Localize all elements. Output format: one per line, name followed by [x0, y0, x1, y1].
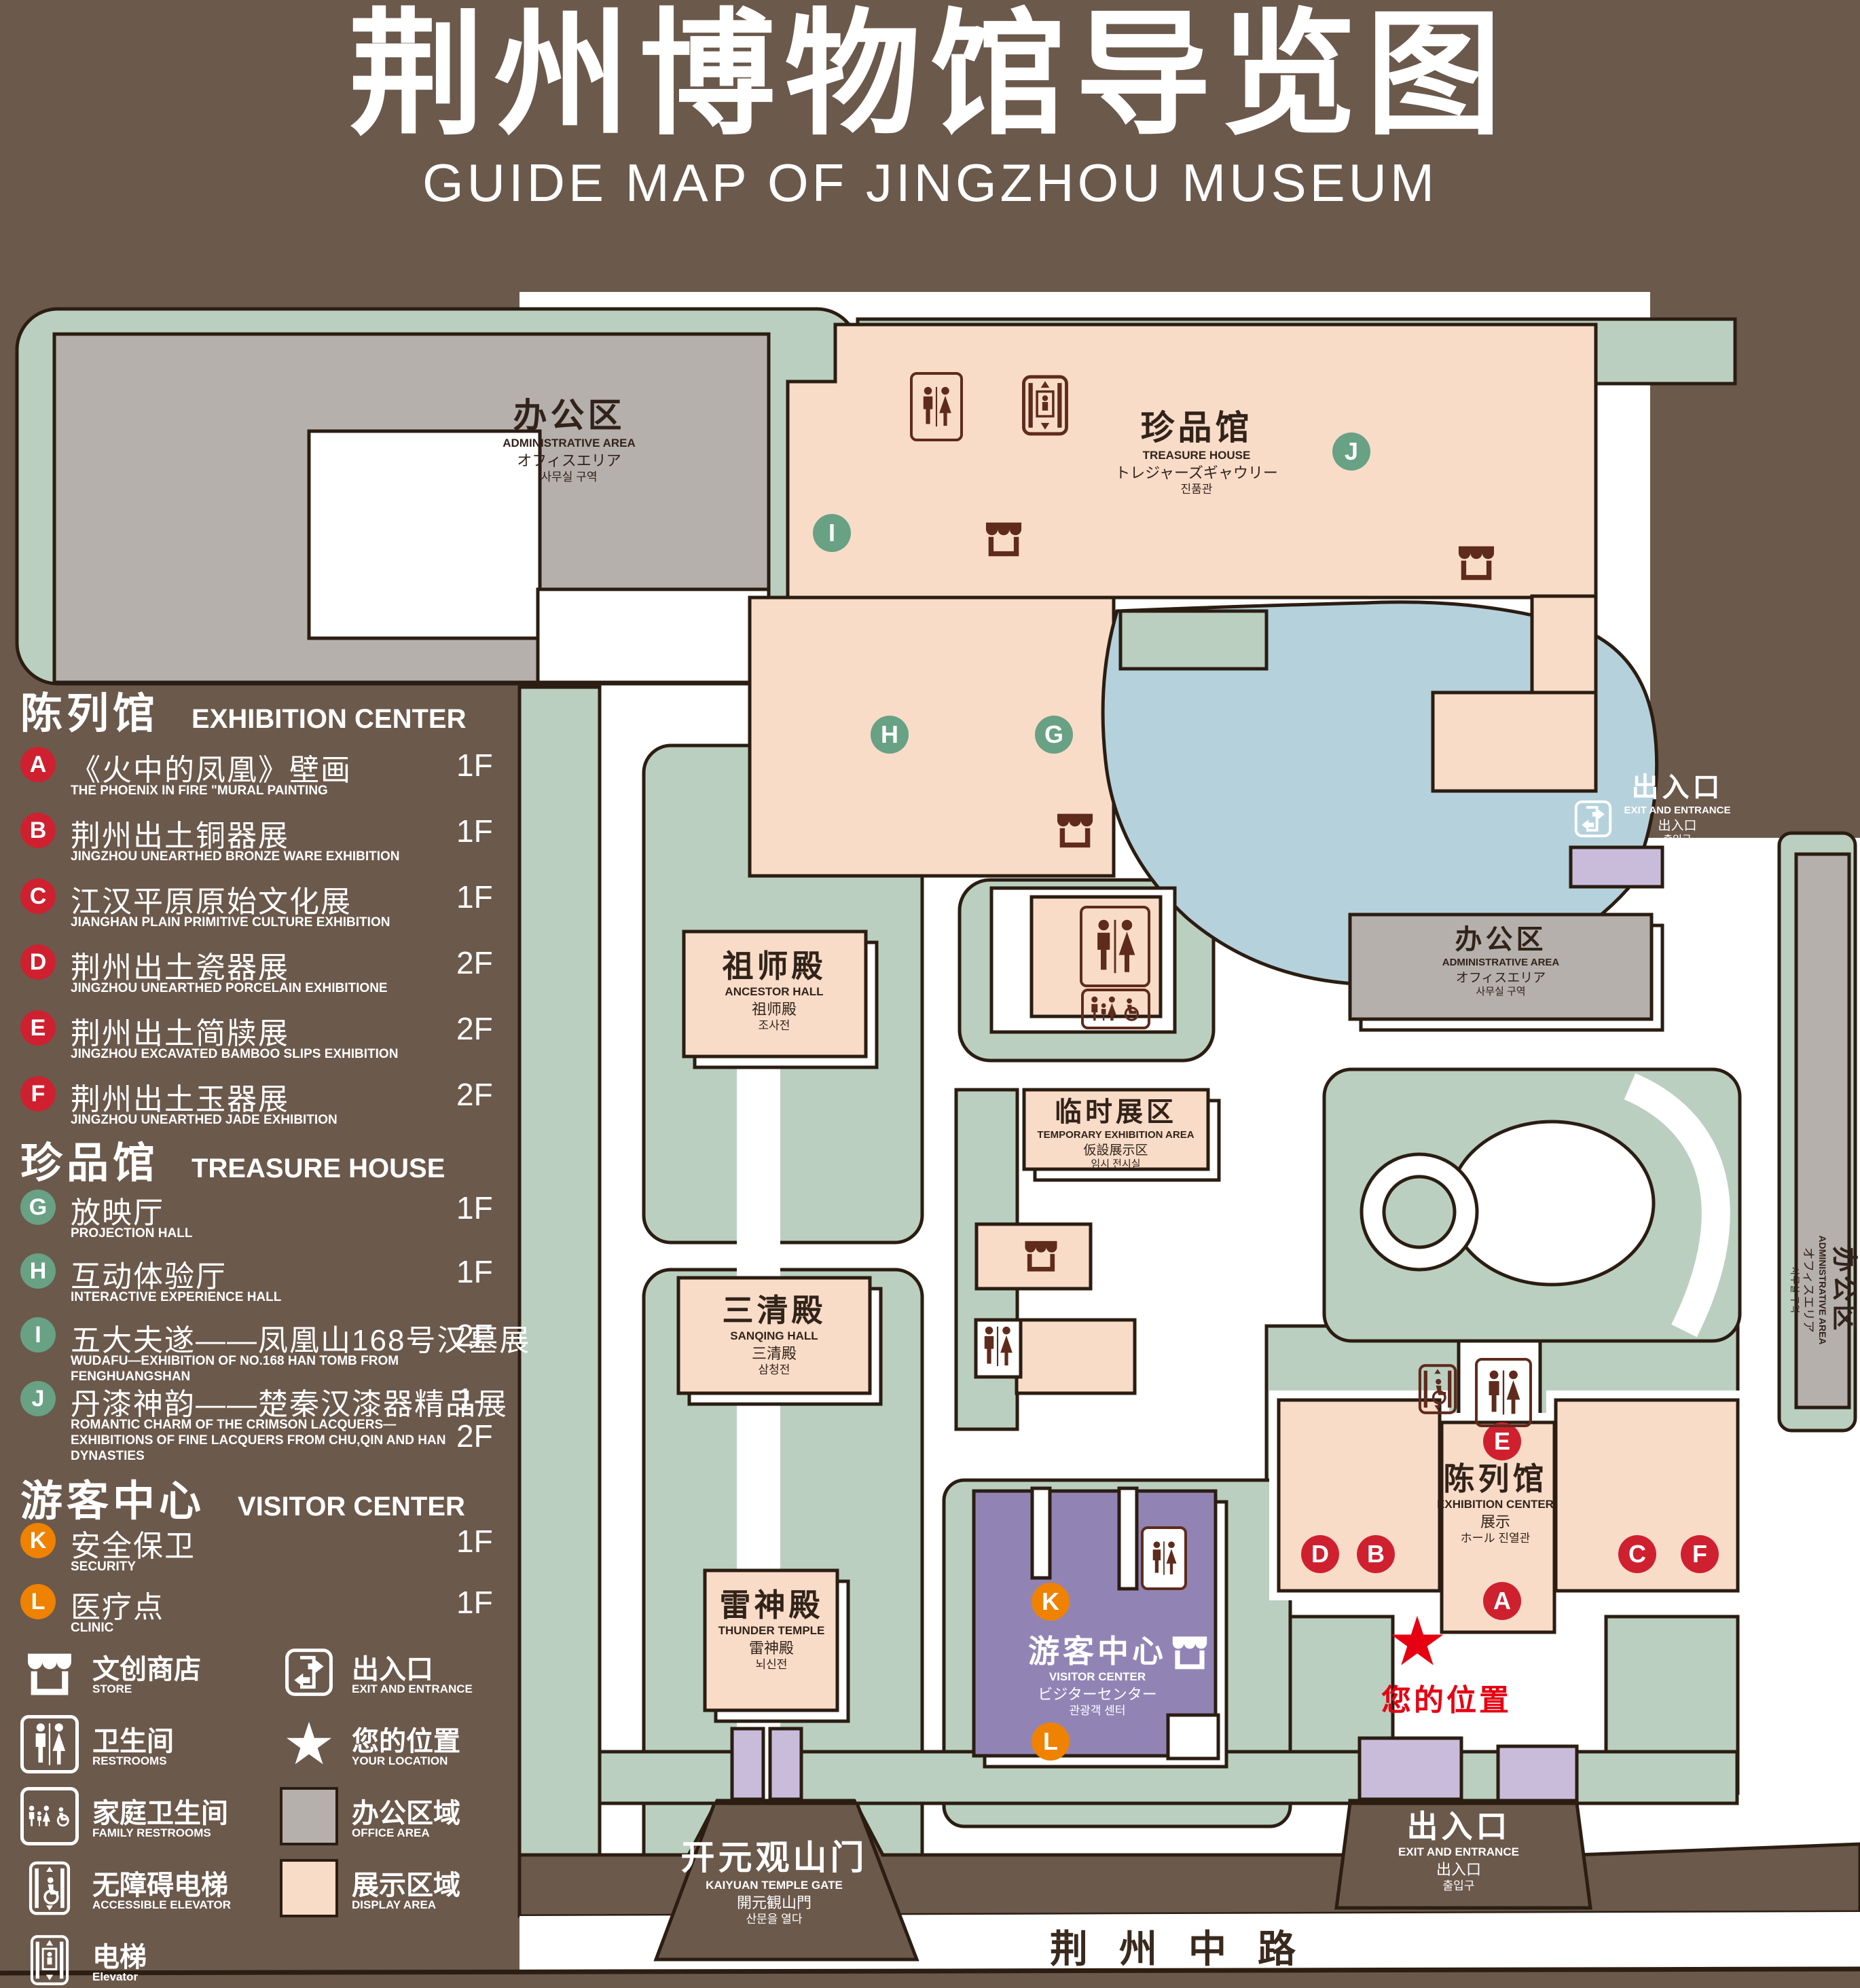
item-subtitle: PROJECTION HALL	[71, 1226, 192, 1242]
item-floor: 1F	[456, 813, 493, 849]
symbol-label-zh: 展示区域	[352, 1863, 460, 1902]
section-title-en: EXHIBITION CENTER	[192, 704, 466, 735]
item-title: 安全保卫	[71, 1522, 196, 1565]
display-area-swatch	[280, 1859, 338, 1917]
badge-e: E	[20, 1010, 56, 1046]
legend-symbol-office-area: 办公区域 OFFICE AREA	[280, 1787, 524, 1852]
badge-h: H	[20, 1253, 56, 1289]
badge-k: K	[20, 1523, 56, 1558]
label-treasure-house: 珍品馆TREASURE HOUSE トレジャーズギャウリー진품관	[1115, 407, 1278, 496]
map-badge-g: G	[1035, 716, 1073, 754]
item-subtitle: JINGZHOU UNEARTHED JADE EXHIBITION	[71, 1113, 338, 1128]
legend-item-l: L 医疗点 CLINIC 1F	[20, 1584, 509, 1649]
exit-south-platform-2	[1498, 1746, 1577, 1801]
label-thunder-temple: 雷神殿THUNDER TEMPLE 雷神殿뇌신전	[718, 1586, 825, 1672]
exit-ne-door-icon	[1574, 800, 1612, 841]
item-subtitle: INTERACTIVE EXPERIENCE HALL	[71, 1290, 281, 1306]
section-title-zh: 珍品馆	[20, 1128, 159, 1190]
gate-pillar-west	[732, 1729, 763, 1799]
map-badge-e: E	[1483, 1422, 1521, 1460]
badge-j: J	[20, 1381, 56, 1416]
symbol-label-en: OFFICE AREA	[352, 1826, 430, 1840]
section-title-zh: 陈列馆	[20, 679, 159, 740]
item-floor: 1F	[456, 1253, 493, 1290]
item-title: 医疗点	[71, 1583, 164, 1626]
legend-item-h: H 互动体验厅 INTERACTIVE EXPERIENCE HALL 1F	[20, 1253, 509, 1319]
path-axis-1	[737, 1056, 780, 1278]
road-name: 荆州中路	[1050, 1919, 1327, 1974]
store-icon	[20, 1643, 79, 1701]
badge-g: G	[20, 1190, 56, 1225]
label-ancestor-hall: 祖师殿ANCESTOR HALL 祖师殿조사전	[723, 947, 826, 1033]
admin-nw-notch	[538, 589, 769, 682]
badge-a: A	[20, 747, 56, 782]
symbol-label-zh: 家庭卫生间	[92, 1791, 228, 1830]
item-floor: 1F	[456, 747, 493, 784]
item-title: 丹漆神韵——楚秦汉漆器精品展	[71, 1380, 508, 1423]
badge-b: B	[20, 813, 56, 848]
mid-store-icon	[1022, 1230, 1060, 1283]
item-subtitle: SECURITY	[71, 1560, 136, 1575]
section-title-en: VISITOR CENTER	[238, 1492, 465, 1522]
treasure-restroom-icon	[910, 372, 963, 441]
label-admin-central: 办公区ADMINISTRATIVE AREA オフィスエリア사무실 구역	[1442, 923, 1560, 999]
legend-item-g: G 放映厅 PROJECTION HALL 1F	[20, 1190, 509, 1255]
legend-item-b: B 荆州出土铜器展 JINGZHOU UNEARTHED BRONZE WARE…	[20, 813, 509, 878]
badge-l: L	[20, 1584, 56, 1619]
item-subtitle: JINGZHOU UNEARTHED PORCELAIN EXHIBITIONE	[71, 981, 388, 997]
legend-symbol-location: ★ 您的位置 YOUR LOCATION	[280, 1715, 524, 1780]
symbol-label-en: Elevator	[92, 1970, 138, 1984]
item-floor: 1F	[456, 1523, 493, 1560]
court-restroom-icon	[1080, 906, 1150, 987]
family-restroom-icon	[20, 1787, 79, 1845]
legend-symbol-elevator: 电梯 Elevator	[20, 1931, 265, 1988]
legend-symbol-display-area: 展示区域 DISPLAY AREA	[280, 1859, 524, 1924]
item-floor: 1-2F	[456, 1381, 509, 1454]
item-subtitle: JIANGHAN PLAIN PRIMITIVE CULTURE EXHIBIT…	[71, 915, 390, 931]
elevator-icon	[20, 1931, 79, 1988]
symbol-label-en: YOUR LOCATION	[352, 1754, 448, 1768]
legend-symbol-restroom: 卫生间 RESTROOMS	[20, 1715, 265, 1780]
treasure-house-east-link	[1532, 596, 1596, 695]
legend-symbol-store: 文创商店 STORE	[20, 1643, 265, 1708]
legend-item-d: D 荆州出土瓷器展 JINGZHOU UNEARTHED PORCELAIN E…	[20, 944, 509, 1010]
treasure-store-icon-3	[1054, 803, 1096, 859]
symbol-label-en: FAMILY RESTROOMS	[92, 1826, 211, 1840]
mid-restroom-icon	[980, 1324, 1015, 1372]
label-exit-south: 出入口EXIT AND ENTRANCE 出入口출입구	[1398, 1807, 1519, 1893]
path-axis-2	[737, 1393, 780, 1570]
legend-item-e: E 荆州出土简牍展 JINGZHOU EXCAVATED BAMBOO SLIP…	[20, 1010, 509, 1075]
badge-f: F	[20, 1076, 56, 1111]
label-exit-northeast: 出入口EXIT AND ENTRANCE 出入口출입구	[1624, 771, 1731, 847]
accessible-elevator-icon	[20, 1859, 79, 1917]
visitor-restroom-icon	[1141, 1526, 1187, 1590]
legend-section-exhibition-center: 陈列馆 EXHIBITION CENTER	[20, 679, 467, 740]
legend-symbol-family-restroom: 家庭卫生间 FAMILY RESTROOMS	[20, 1787, 265, 1852]
label-sanqing-hall: 三清殿SANQING HALL 三清殿삼청전	[723, 1291, 826, 1377]
map-badge-l: L	[1032, 1723, 1070, 1761]
legend-section-treasure-house: 珍品馆 TREASURE HOUSE	[20, 1128, 445, 1190]
badge-i: I	[20, 1317, 56, 1352]
treasure-house-east-wing	[1433, 693, 1596, 791]
map-badge-h: H	[871, 716, 909, 754]
map-badge-d: D	[1301, 1535, 1339, 1573]
item-title: 互动体验厅	[71, 1252, 227, 1295]
symbol-label-zh: 出入口	[352, 1647, 433, 1687]
label-admin-northwest: 办公区ADMINISTRATIVE AREA オフィスエリア사무실 구역	[503, 395, 636, 484]
item-title: 江汉平原原始文化展	[71, 877, 352, 921]
symbol-label-zh: 卫生间	[92, 1719, 174, 1759]
item-title: 《火中的凤凰》壁画	[71, 745, 352, 789]
court-family-restroom-icon	[1081, 989, 1150, 1029]
item-subtitle: ROMANTIC CHARM OF THE CRIMSON LACQUERS—E…	[71, 1418, 448, 1464]
symbol-label-zh: 您的位置	[352, 1719, 460, 1759]
treasure-elevator-icon	[1021, 373, 1069, 441]
section-title-en: TREASURE HOUSE	[192, 1154, 445, 1184]
visitor-store-icon	[1169, 1625, 1210, 1680]
label-exhibition-center: 陈列馆EXHIBITION CENTER 展示ホール 진열관	[1437, 1460, 1554, 1545]
map-badge-j: J	[1332, 432, 1370, 471]
legend-symbol-exit: 出入口 EXIT AND ENTRANCE	[280, 1643, 524, 1708]
item-floor: 2F	[456, 1317, 493, 1354]
your-location-label: 您的位置	[1381, 1676, 1512, 1719]
label-kaiyuan-gate: 开元观山门KAIYUAN TEMPLE GATE 開元観山門산문을 열다	[681, 1837, 868, 1926]
restroom-icon	[20, 1715, 79, 1773]
label-visitor-center: 游客中心VISITOR CENTER ビジターセンター관광객 센터	[1028, 1632, 1167, 1718]
map-badge-a: A	[1483, 1582, 1521, 1620]
your-location-star-icon: ★	[1387, 1608, 1448, 1676]
legend-item-i: I 五大夫遂——凤凰山168号汉墓展 WUDAFU—EXHIBITION OF …	[20, 1317, 509, 1382]
symbol-label-en: ACCESSIBLE ELEVATOR	[92, 1898, 231, 1912]
badge-c: C	[20, 879, 56, 914]
exit-south-platform-1	[1360, 1738, 1461, 1799]
label-admin-east: 办公区ADMINISTRATIVE AREA オフィスエリア사무실 구역	[1789, 1236, 1859, 1345]
legend-symbol-accessible-elevator: 无障碍电梯 ACCESSIBLE ELEVATOR	[20, 1859, 265, 1924]
map-badge-k: K	[1032, 1583, 1070, 1621]
exhibition-restroom-icon	[1475, 1358, 1532, 1427]
symbol-label-zh: 无障碍电梯	[92, 1863, 228, 1902]
legend-item-a: A 《火中的凤凰》壁画 THE PHOENIX IN FIRE "MURAL P…	[20, 747, 509, 812]
item-subtitle: JINGZHOU UNEARTHED BRONZE WARE EXHIBITIO…	[71, 849, 400, 865]
treasure-store-icon-1	[983, 511, 1025, 568]
map-badge-i: I	[813, 514, 851, 552]
badge-d: D	[20, 944, 56, 980]
item-floor: 2F	[456, 1076, 493, 1113]
symbol-label-en: EXIT AND ENTRANCE	[352, 1682, 473, 1696]
legend-section-visitor-center: 游客中心 VISITOR CENTER	[20, 1467, 465, 1528]
item-title: 荆州出土铜器展	[71, 811, 289, 855]
symbol-label-en: STORE	[92, 1682, 132, 1696]
garden-west-strip	[519, 687, 600, 1893]
map-badge-f: F	[1681, 1535, 1719, 1573]
park-island	[1384, 1177, 1455, 1247]
item-floor: 2F	[456, 1010, 493, 1047]
map-badge-b: B	[1357, 1535, 1395, 1573]
exit-entrance-icon	[280, 1643, 338, 1701]
symbol-label-zh: 文创商店	[92, 1647, 201, 1687]
location-star-icon: ★	[280, 1715, 338, 1773]
section-title-zh: 游客中心	[20, 1467, 205, 1528]
pond-dock	[1120, 611, 1266, 669]
legend-item-c: C 江汉平原原始文化展 JIANGHAN PLAIN PRIMITIVE CUL…	[20, 879, 509, 944]
office-area-swatch	[280, 1787, 338, 1845]
symbol-label-zh: 电梯	[92, 1935, 147, 1974]
item-floor: 1F	[456, 879, 493, 915]
wc-block	[1017, 1320, 1135, 1393]
symbol-label-zh: 办公区域	[352, 1791, 460, 1830]
exhibition-accessible-elevator-icon	[1418, 1361, 1457, 1421]
item-title: 放映厅	[71, 1188, 164, 1232]
exit-ne-platform	[1571, 847, 1662, 887]
symbol-label-en: RESTROOMS	[92, 1754, 167, 1768]
item-floor: 1F	[456, 1584, 493, 1621]
symbol-label-en: DISPLAY AREA	[352, 1898, 436, 1912]
item-title: 荆州出土简牍展	[71, 1009, 289, 1052]
visitor-center-step	[1168, 1715, 1218, 1759]
page-title: 荆州博物馆导览图	[0, 4, 1860, 147]
visitor-center-notch2	[1119, 1488, 1137, 1589]
item-subtitle: THE PHOENIX IN FIRE "MURAL PAINTING	[71, 784, 328, 799]
item-title: 荆州出土瓷器展	[71, 943, 289, 987]
park-path-center	[1450, 1122, 1654, 1285]
label-temporary-exhibition: 临时展区TEMPORARY EXHIBITION AREA 仮設展示区임시 전시…	[1037, 1096, 1194, 1171]
guide-map-canvas: 荆州博物馆导览图 GUIDE MAP OF JINGZHOU MUSEUM 陈列…	[0, 0, 1860, 1988]
item-title: 荆州出土玉器展	[71, 1075, 289, 1118]
item-floor: 1F	[456, 1190, 493, 1226]
legend-item-k: K 安全保卫 SECURITY 1F	[20, 1523, 509, 1588]
page-subtitle: GUIDE MAP OF JINGZHOU MUSEUM	[0, 152, 1860, 214]
item-floor: 2F	[456, 944, 493, 981]
item-subtitle: JINGZHOU EXCAVATED BAMBOO SLIPS EXHIBITI…	[71, 1047, 398, 1063]
visitor-center-notch1	[1032, 1488, 1050, 1578]
treasure-store-icon-2	[1455, 535, 1497, 591]
map-badge-c: C	[1618, 1535, 1656, 1573]
road-south-edge	[0, 1969, 1860, 1973]
item-subtitle: CLINIC	[71, 1621, 113, 1636]
gate-pillar-east	[770, 1729, 801, 1799]
legend-item-j: J 丹漆神韵——楚秦汉漆器精品展 ROMANTIC CHARM OF THE C…	[20, 1381, 509, 1469]
